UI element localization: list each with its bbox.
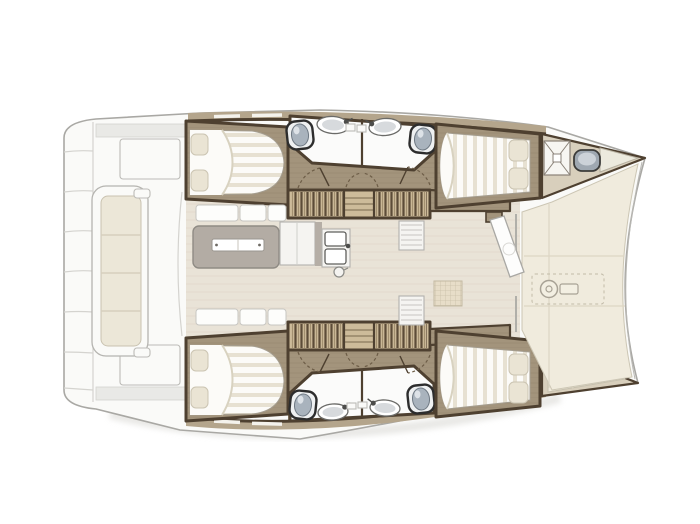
catamaran-floor-plan [0,0,700,524]
vented-locker-top [399,221,424,250]
stbd-companionway-stairs [288,322,430,350]
toilet [407,384,436,415]
salon-sofa-aft-top [196,205,286,221]
pillow [509,382,528,403]
pillow [191,350,208,371]
pillow [509,354,528,375]
stbd-bathrooms [289,366,436,421]
stair-flight [291,324,343,348]
stbd-aft-cabin [186,331,288,421]
pillow [509,168,528,189]
toilet [409,124,438,155]
deck-hatch [544,141,570,175]
cockpit-arch-bottom [96,387,188,400]
salon-sofa-aft-bottom [196,309,286,325]
windlass [574,150,600,171]
stbd-forward-cabin [436,331,540,417]
pillow [191,134,208,155]
vented-locker-bottom [399,296,424,325]
galley-island [193,226,279,268]
bench-armrest-bottom [134,348,150,357]
toilet [289,390,318,421]
galley-basin [325,232,346,246]
toilet [286,120,315,151]
bench-armrest-top [134,189,150,198]
doormat [434,281,462,306]
galley-sink-unit [322,229,350,267]
vanity-shelf [347,403,356,409]
galley-basin [325,249,346,264]
aft-bench-cushion [101,196,141,346]
stair-flight [375,324,427,348]
floor-plan-image [0,0,700,524]
port-aft-cabin [186,121,288,205]
stern-locker-top [120,139,180,179]
pillow [509,140,528,161]
stair-flight [375,192,427,216]
cockpit-arch-top [96,124,188,137]
galley-gray-strip [315,222,322,266]
vanity-shelf [346,124,355,131]
port-companionway-stairs [288,190,430,218]
stair-flight [291,192,343,216]
port-forward-cabin [436,124,540,208]
pillow [191,170,208,191]
vanity-shelf [358,402,367,408]
pillow [191,387,208,408]
port-bathrooms [286,115,438,170]
vanity-shelf [357,125,366,132]
